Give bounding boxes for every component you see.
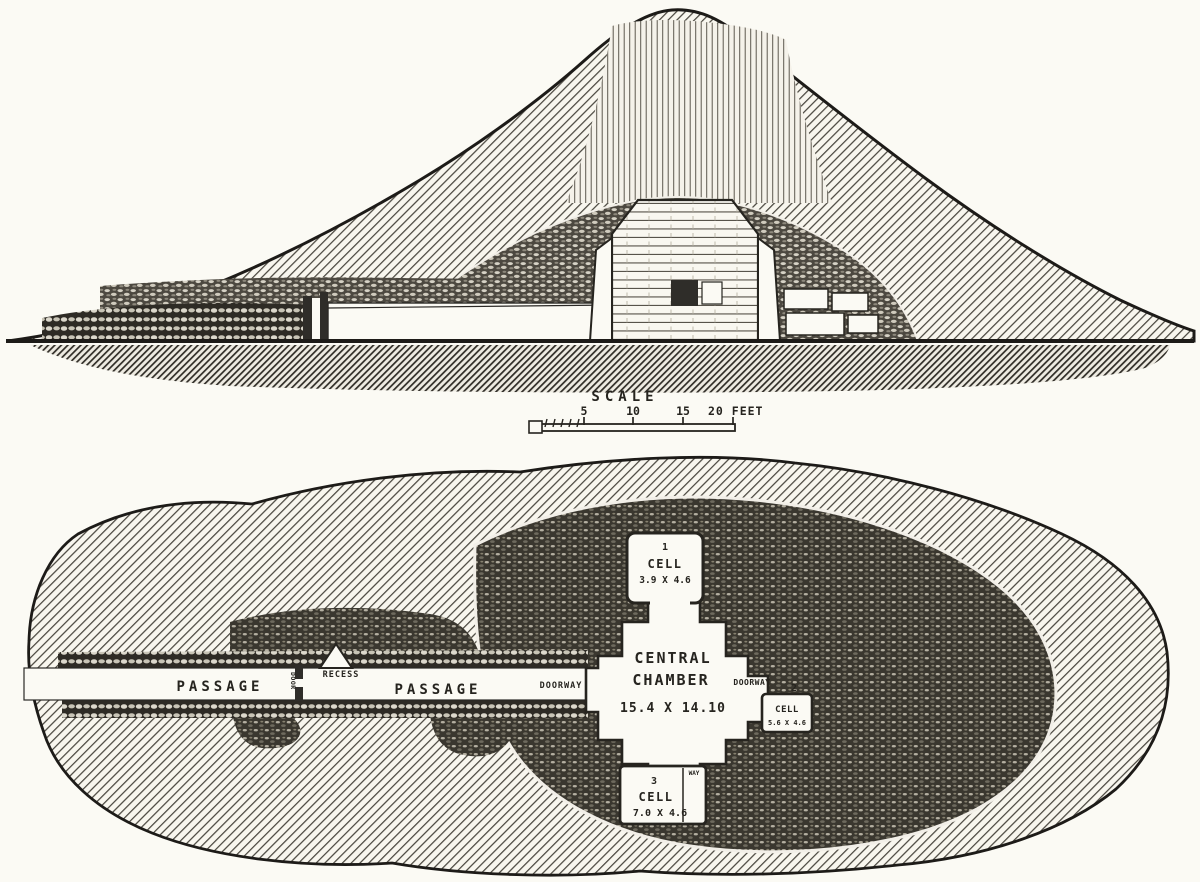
section-entrance-post-inner bbox=[320, 292, 328, 341]
scale-tick-10: 10 bbox=[626, 404, 640, 418]
doorway-label-south: WAY bbox=[689, 770, 700, 777]
chamber-name-line2: CHAMBER bbox=[632, 671, 709, 689]
engraving-figure: SCALE 5 10 15 20 FEET bbox=[0, 0, 1200, 882]
plan-cell-1-neck bbox=[650, 598, 690, 608]
section-ground-strip bbox=[30, 345, 1170, 393]
door-label-vertical: DOOR bbox=[289, 672, 297, 690]
scale-title: SCALE bbox=[591, 389, 658, 405]
section-passage-corridor bbox=[328, 303, 613, 341]
section-doorway-opening bbox=[671, 280, 698, 306]
chamber-name-line1: CENTRAL bbox=[634, 649, 711, 667]
passage-label-inner: PASSAGE bbox=[394, 682, 481, 698]
cell-2-number: 2 bbox=[791, 683, 797, 694]
section-sill-stone bbox=[702, 282, 722, 304]
cell-2-dimensions: 5.6 X 4.6 bbox=[768, 719, 806, 727]
cell-3-label: CELL bbox=[639, 790, 674, 804]
cell-3-number: 3 bbox=[651, 776, 657, 787]
scale-tick-15: 15 bbox=[676, 404, 690, 418]
scale-bar: SCALE 5 10 15 20 FEET bbox=[529, 389, 763, 433]
doorway-label-east: DOORWAY bbox=[733, 678, 770, 687]
plan-passage-corridor bbox=[24, 668, 588, 700]
doorway-label-west: DOORWAY bbox=[540, 681, 583, 691]
mound-diagram-svg: SCALE 5 10 15 20 FEET bbox=[0, 0, 1200, 882]
chamber-dimensions: 15.4 X 14.10 bbox=[620, 701, 726, 716]
plan-view: PASSAGE DOOR RECESS PASSAGE DOORWAY CENT… bbox=[24, 457, 1168, 875]
scale-bar-rule bbox=[533, 424, 735, 431]
cell-1-dimensions: 3.9 X 4.6 bbox=[639, 575, 691, 586]
section-entrance-post-outer bbox=[303, 296, 312, 341]
cell-1-number: 1 bbox=[662, 542, 668, 553]
cell-1-label: CELL bbox=[648, 557, 683, 571]
scale-end-label: 20 FEET bbox=[708, 404, 763, 418]
passage-label-outer: PASSAGE bbox=[176, 679, 263, 695]
cell-3-dimensions: 7.0 X 4.6 bbox=[633, 808, 687, 819]
cell-2-label: CELL bbox=[775, 705, 799, 715]
scale-tick-5: 5 bbox=[581, 404, 588, 418]
recess-label: RECESS bbox=[323, 670, 360, 680]
section-view bbox=[6, 10, 1194, 393]
section-chamber-masonry bbox=[612, 200, 758, 341]
section-base-masonry bbox=[42, 303, 330, 341]
plan-passage-wall-south bbox=[62, 700, 588, 718]
section-entrance-gap bbox=[312, 298, 320, 341]
scale-bar-end-box bbox=[529, 421, 542, 433]
section-ground-line bbox=[6, 339, 1194, 343]
